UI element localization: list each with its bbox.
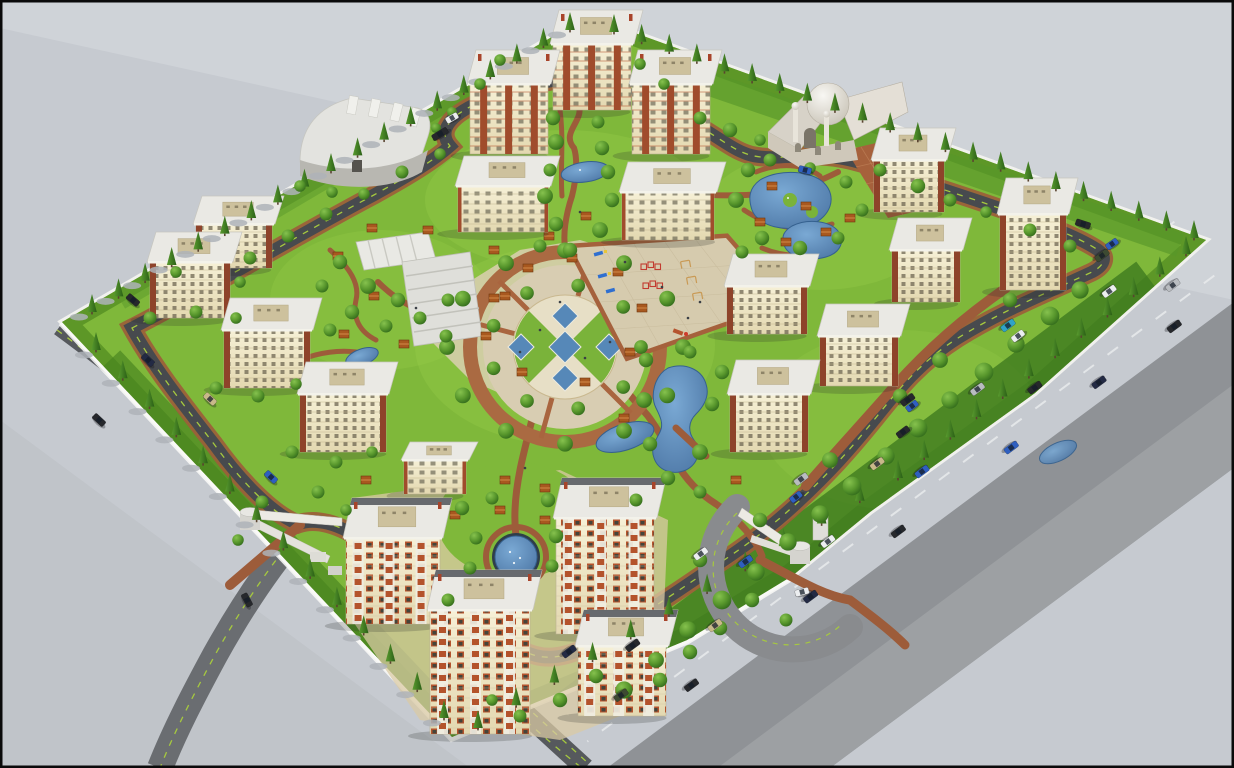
garden-tree <box>486 492 499 505</box>
garden-tree <box>498 423 514 439</box>
garden-tree <box>571 279 585 293</box>
pedestrian-figure <box>579 211 582 214</box>
garden-tree <box>592 116 605 129</box>
garden-gazebo <box>423 226 433 234</box>
garden-tree <box>1041 307 1060 326</box>
garden-tree <box>793 241 807 255</box>
garden-tree <box>941 391 958 408</box>
pedestrian-figure <box>687 317 690 320</box>
garden-tree <box>571 402 585 416</box>
garden-tree <box>190 306 203 319</box>
garden-tree <box>713 591 732 610</box>
garden-tree <box>683 645 697 659</box>
garden-tree <box>659 387 675 403</box>
garden-gazebo <box>489 246 499 254</box>
garden-tree <box>464 562 477 575</box>
garden-tree <box>630 494 643 507</box>
masterplan-render: Residential complex masterplan — aerial … <box>0 0 1234 768</box>
garden-gazebo <box>845 214 855 222</box>
garden-tree <box>745 593 759 607</box>
garden-tree <box>316 280 329 293</box>
pedestrian-figure <box>624 261 627 264</box>
pedestrian-figure <box>661 286 664 289</box>
garden-tree <box>470 532 483 545</box>
pedestrian-figure <box>559 301 562 304</box>
pedestrian-figure <box>584 357 587 360</box>
garden-tree <box>244 252 257 265</box>
garden-gazebo <box>625 348 635 356</box>
mosque-door <box>804 128 816 148</box>
pedestrian-figure <box>524 467 527 470</box>
minaret <box>793 108 798 142</box>
garden-tree <box>520 394 534 408</box>
garden-tree <box>932 352 948 368</box>
garden-tree <box>616 300 630 314</box>
garden-tree <box>944 194 957 207</box>
garden-tree <box>653 673 667 687</box>
garden-gazebo <box>500 476 510 484</box>
garden-gazebo <box>540 516 550 524</box>
garden-gazebo <box>581 212 591 220</box>
garden-tree <box>144 312 157 325</box>
garden-tree <box>692 444 708 460</box>
garden-tree <box>333 255 347 269</box>
garden-gazebo <box>755 218 765 226</box>
garden-gazebo <box>523 264 533 272</box>
garden-tree <box>544 164 557 177</box>
garden-tree <box>636 392 652 408</box>
garden-tree <box>736 246 749 259</box>
garden-tree <box>811 505 828 522</box>
garden-tree <box>440 330 453 343</box>
garden-tree <box>755 231 769 245</box>
garden-tree <box>980 206 992 218</box>
garden-tree <box>1024 224 1037 237</box>
garden-tree <box>210 382 223 395</box>
garden-tree <box>537 188 553 204</box>
garden-tree <box>345 305 359 319</box>
garden-tree <box>234 276 246 288</box>
garden-gazebo <box>767 182 777 190</box>
garden-gazebo <box>731 476 741 484</box>
garden-gazebo <box>399 340 409 348</box>
garden-tree <box>487 361 501 375</box>
garden-tree <box>659 291 675 307</box>
garden-tree <box>634 58 646 70</box>
garden-tree <box>520 286 534 300</box>
pedestrian-figure <box>539 329 542 332</box>
garden-tree <box>1003 293 1017 307</box>
garden-tree <box>856 204 869 217</box>
garden-tree <box>442 594 455 607</box>
garden-tree <box>658 78 670 90</box>
garden-tree <box>320 208 333 221</box>
garden-tree <box>601 165 615 179</box>
garden-tree <box>256 496 269 509</box>
garden-tree <box>634 340 648 354</box>
garden-tree <box>840 176 853 189</box>
pedestrian-figure <box>519 351 522 354</box>
garden-tree <box>557 436 573 452</box>
garden-gazebo <box>637 304 647 312</box>
garden-gazebo <box>580 378 590 386</box>
garden-tree <box>414 312 427 325</box>
garden-tree <box>455 291 471 307</box>
garden-tree <box>514 710 527 723</box>
pedestrian-figure <box>609 341 612 344</box>
garden-tree <box>549 217 563 231</box>
garden-tree <box>684 346 697 359</box>
garden-tree <box>616 423 632 439</box>
garden-tree <box>822 452 838 468</box>
garden-tree <box>779 533 796 550</box>
garden-tree <box>358 188 370 200</box>
garden-tree <box>396 166 409 179</box>
garden-gazebo <box>489 294 499 302</box>
minaret <box>824 116 829 146</box>
garden-tree <box>661 471 675 485</box>
garden-gazebo <box>801 202 811 210</box>
garden-tree <box>455 387 471 403</box>
garden-tree <box>366 446 378 458</box>
garden-tree <box>832 232 845 245</box>
garden-tree <box>616 380 630 394</box>
garden-tree <box>595 141 609 155</box>
garden-tree <box>498 255 514 271</box>
garden-tree <box>487 319 501 333</box>
garden-tree <box>324 324 337 337</box>
garden-tree <box>391 293 405 307</box>
garden-tree <box>534 240 547 253</box>
garden-tree <box>312 486 325 499</box>
garden-tree <box>694 112 707 125</box>
garden-tree <box>563 243 577 257</box>
garden-tree <box>975 363 994 382</box>
garden-tree <box>252 390 265 403</box>
garden-tree <box>911 179 925 193</box>
garden-tree <box>230 312 242 324</box>
garden-tree <box>679 621 696 638</box>
garden-tree <box>715 365 729 379</box>
garden-tree <box>754 134 766 146</box>
garden-tree <box>474 78 486 90</box>
garden-tree <box>764 154 777 167</box>
garden-tree <box>553 693 567 707</box>
garden-tree <box>648 652 664 668</box>
garden-gazebo <box>481 332 491 340</box>
garden-tree <box>639 353 653 367</box>
garden-tree <box>170 266 182 278</box>
garden-tree <box>434 148 446 160</box>
garden-gazebo <box>517 368 527 376</box>
garden-tree <box>843 477 862 496</box>
garden-tree <box>286 446 299 459</box>
garden-tree <box>694 486 707 499</box>
garden-tree <box>643 437 657 451</box>
garden-tree <box>455 501 469 515</box>
garden-tree <box>340 504 352 516</box>
garden-gazebo <box>821 228 831 236</box>
garden-tree <box>741 163 755 177</box>
garden-gazebo <box>367 224 377 232</box>
garden-gazebo <box>540 484 550 492</box>
garden-gazebo <box>781 238 791 246</box>
garden-gazebo <box>339 330 349 338</box>
garden-tree <box>1071 281 1088 298</box>
garden-tree <box>548 134 564 150</box>
garden-tree <box>282 230 295 243</box>
pedestrian-figure <box>415 307 418 310</box>
garden-tree <box>780 614 793 627</box>
garden-tree <box>605 193 619 207</box>
garden-tree <box>874 164 887 177</box>
garden-tree <box>326 186 338 198</box>
garden-tree <box>616 255 632 271</box>
garden-tree <box>232 534 244 546</box>
garden-tree <box>723 123 737 137</box>
garden-tree <box>380 320 393 333</box>
garden-tree <box>360 278 376 294</box>
garden-tree <box>753 513 767 527</box>
garden-tree <box>747 563 764 580</box>
garden-tree <box>1064 240 1077 253</box>
garden-tree <box>330 456 343 469</box>
garden-tree <box>486 694 498 706</box>
garden-tree <box>546 111 560 125</box>
garden-tree <box>442 294 455 307</box>
garden-tree <box>589 669 603 683</box>
garden-tree <box>728 192 744 208</box>
garden-tree <box>592 222 608 238</box>
garden-tree <box>705 397 719 411</box>
garden-gazebo <box>619 414 629 422</box>
garden-tree <box>549 529 563 543</box>
garden-gazebo <box>500 292 510 300</box>
garden-gazebo <box>495 506 505 514</box>
garden-tree <box>546 560 559 573</box>
garden-tree <box>541 493 555 507</box>
garden-gazebo <box>361 476 371 484</box>
garden-tree <box>294 180 306 192</box>
pedestrian-figure <box>699 301 702 304</box>
garden-tree <box>494 54 506 66</box>
garden-tree <box>290 378 302 390</box>
